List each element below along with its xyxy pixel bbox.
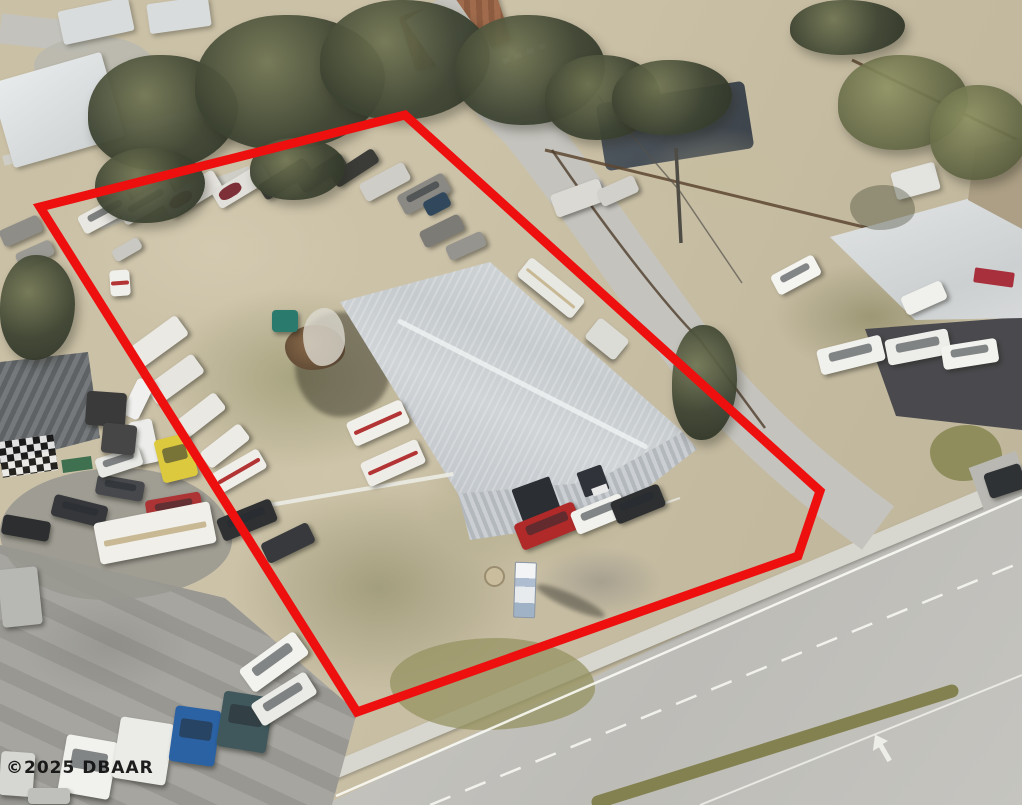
white-red-box: [109, 269, 131, 296]
blue-car: [168, 705, 221, 767]
teal-bin: [272, 310, 298, 332]
business-sign: [513, 562, 537, 619]
parked-car: [101, 422, 138, 455]
parked-car: [28, 788, 70, 804]
watermark: ©2025 DBAAR: [6, 758, 154, 778]
tree-canopy: [930, 85, 1022, 180]
sand-pile: [303, 308, 345, 366]
tree-shadow: [850, 185, 915, 230]
grass-verge: [390, 638, 595, 730]
silver-suv: [0, 566, 43, 628]
manhole-cover: [484, 566, 505, 587]
aerial-property-photo: ©2025 DBAAR: [0, 0, 1022, 805]
